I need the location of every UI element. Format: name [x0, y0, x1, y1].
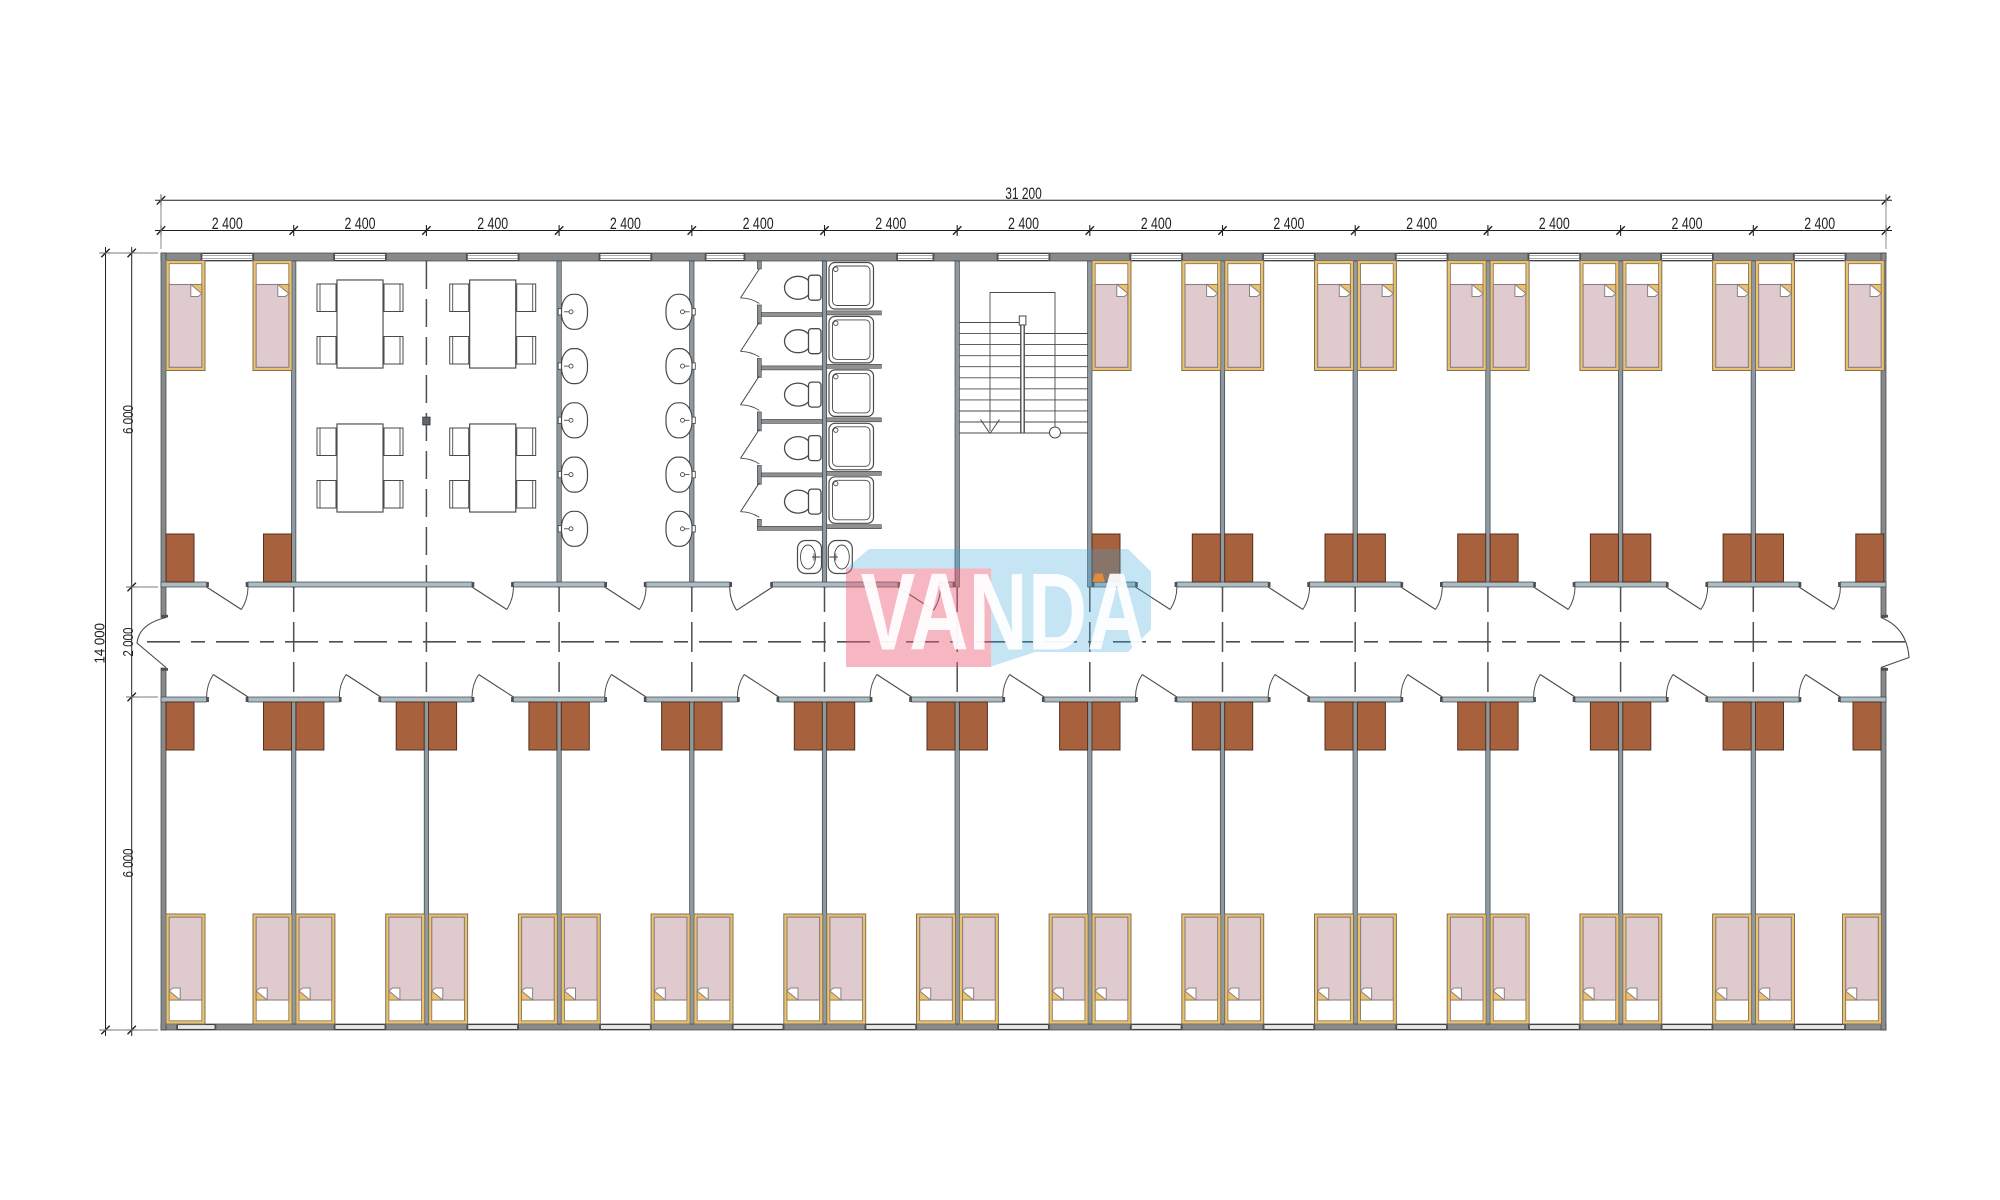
svg-text:2 400: 2 400 [1539, 215, 1570, 233]
svg-text:31 200: 31 200 [1005, 185, 1042, 203]
svg-text:2 000: 2 000 [121, 628, 137, 657]
svg-text:VANDA: VANDA [861, 550, 1147, 674]
svg-text:2 400: 2 400 [875, 215, 906, 233]
svg-text:2 400: 2 400 [610, 215, 641, 233]
svg-text:2 400: 2 400 [212, 215, 243, 233]
svg-text:2 400: 2 400 [1008, 215, 1039, 233]
svg-text:2 400: 2 400 [1804, 215, 1835, 233]
svg-text:6 000: 6 000 [121, 405, 137, 434]
svg-text:2 400: 2 400 [1273, 215, 1304, 233]
svg-text:14 000: 14 000 [92, 623, 108, 664]
svg-text:2 400: 2 400 [743, 215, 774, 233]
svg-text:2 400: 2 400 [345, 215, 376, 233]
svg-text:6 000: 6 000 [121, 849, 137, 878]
svg-text:2 400: 2 400 [477, 215, 508, 233]
svg-text:2 400: 2 400 [1406, 215, 1437, 233]
svg-text:2 400: 2 400 [1141, 215, 1172, 233]
svg-text:2 400: 2 400 [1672, 215, 1703, 233]
